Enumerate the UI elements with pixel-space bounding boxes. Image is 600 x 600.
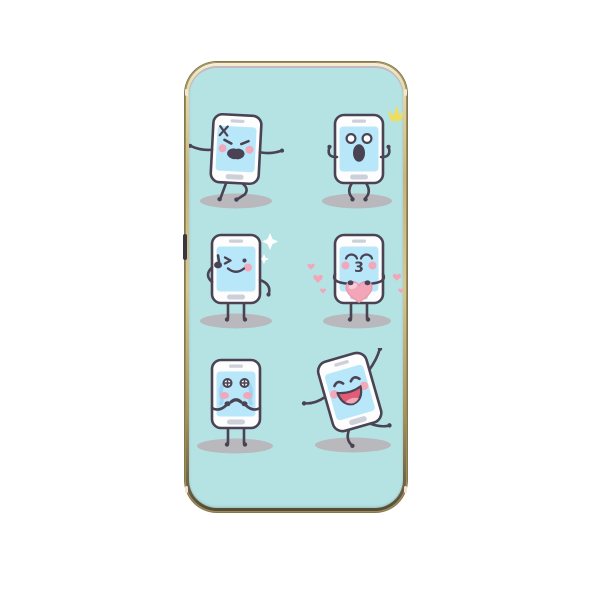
antenna-notch xyxy=(404,89,407,96)
kissing-phone-sticker: 3 xyxy=(304,225,403,335)
winking-phone-sticker xyxy=(189,225,291,335)
round-eye xyxy=(347,134,356,143)
angry-phone-sticker xyxy=(189,105,291,215)
open-mouth xyxy=(353,144,365,162)
hand xyxy=(242,401,248,406)
thumb xyxy=(218,256,219,262)
yellow-sparkle-icon xyxy=(388,106,404,122)
kiss-mouth-glyph: 3 xyxy=(354,260,364,276)
hand xyxy=(348,280,354,285)
hand xyxy=(386,145,390,149)
foot xyxy=(225,317,229,321)
shadow-ellipse xyxy=(323,314,391,329)
leg xyxy=(349,183,352,198)
hand xyxy=(365,280,371,285)
foot xyxy=(366,317,370,321)
leg xyxy=(366,183,369,198)
shadow-ellipse xyxy=(197,439,273,454)
shadow-ellipse xyxy=(200,314,272,329)
speaker-slot xyxy=(352,240,366,243)
foot xyxy=(350,197,354,201)
foot xyxy=(225,442,229,446)
dancing-phone-sticker xyxy=(295,348,403,458)
speaker-slot xyxy=(229,240,243,243)
home-button xyxy=(225,174,243,180)
home-button xyxy=(350,175,368,180)
hand xyxy=(301,401,306,406)
phone-case: 3 xyxy=(185,62,407,512)
arm xyxy=(260,150,281,154)
cheek xyxy=(369,262,377,270)
shadow-ellipse xyxy=(322,194,392,209)
foot xyxy=(243,442,247,446)
home-button xyxy=(227,420,245,425)
thumbs-up-icon xyxy=(214,262,222,269)
case-back-print: 3 xyxy=(189,66,403,508)
antenna-notch xyxy=(185,486,188,493)
speaker-slot xyxy=(229,365,243,368)
cheek xyxy=(243,392,252,399)
cheek xyxy=(342,262,350,270)
home-button xyxy=(227,295,245,300)
diamond-sparkle-icon xyxy=(262,233,278,250)
foot xyxy=(348,317,352,321)
cheek xyxy=(220,392,229,399)
arm xyxy=(191,146,212,150)
foot xyxy=(243,317,247,321)
cheek xyxy=(244,264,252,272)
speaker-slot xyxy=(352,120,366,123)
hand xyxy=(225,401,231,406)
antenna-notch xyxy=(185,89,188,96)
dancing-phone-figure xyxy=(295,348,403,458)
heart-icon xyxy=(307,264,314,270)
antenna-notch xyxy=(404,486,407,493)
foot xyxy=(387,423,392,428)
foot xyxy=(363,197,367,201)
product-image-page: { "product": { "type": "phone-case-mocku… xyxy=(0,0,600,600)
volume-button xyxy=(183,234,187,260)
heart-icon xyxy=(313,275,322,283)
hand xyxy=(266,292,270,296)
heart-icon xyxy=(320,289,326,294)
arm xyxy=(260,280,269,293)
angry-phone-figure xyxy=(189,113,286,205)
round-eye xyxy=(363,134,372,143)
heart-icon xyxy=(393,274,401,281)
arm xyxy=(305,397,326,405)
crying-phone-sticker xyxy=(189,350,291,460)
shocked-phone-sticker xyxy=(304,105,403,215)
heart-icon xyxy=(398,288,403,293)
hand xyxy=(327,145,331,149)
dot-eye xyxy=(243,259,247,263)
